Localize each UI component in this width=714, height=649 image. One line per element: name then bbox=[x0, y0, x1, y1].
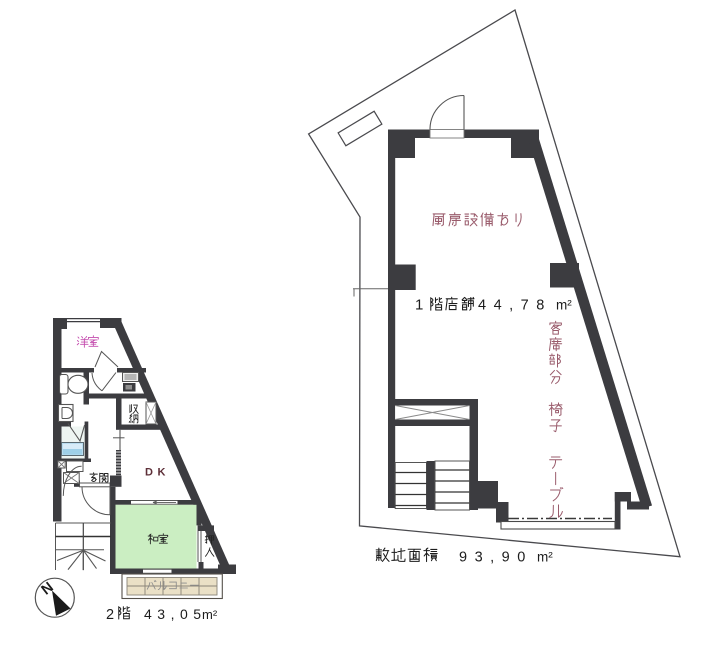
svg-text:93,90: 93,90 bbox=[459, 550, 533, 566]
svg-text:m²: m² bbox=[556, 298, 572, 313]
svg-text:2: 2 bbox=[106, 607, 114, 623]
svg-text:43,05: 43,05 bbox=[144, 606, 207, 622]
svg-text:m²: m² bbox=[537, 550, 553, 565]
svg-text:DK: DK bbox=[145, 467, 170, 479]
svg-text:1: 1 bbox=[415, 297, 431, 314]
svg-text:44,78: 44,78 bbox=[478, 298, 552, 314]
svg-text:m²: m² bbox=[202, 607, 218, 622]
